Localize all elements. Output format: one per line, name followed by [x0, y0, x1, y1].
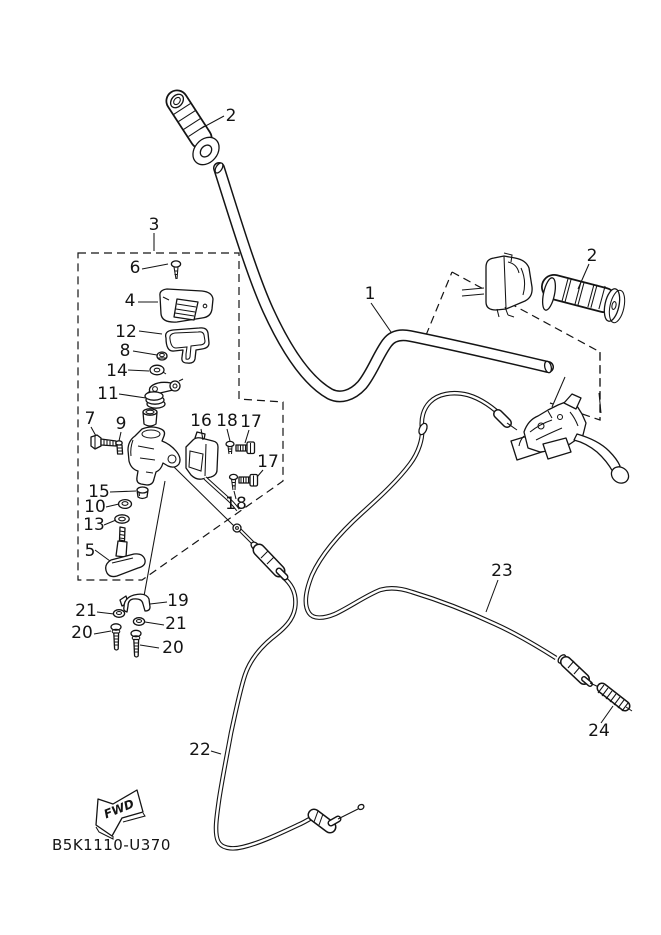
washer-upper: [119, 500, 132, 509]
callout-clamp-screw-left: 20: [71, 623, 93, 643]
callout-screw-upper: 18: [216, 411, 238, 431]
screw-lower: [230, 474, 238, 490]
pivot-cap: [137, 487, 148, 499]
washer-lower: [115, 515, 129, 523]
brake-lever-assembly: [511, 394, 632, 486]
fwd-direction-arrow: FWD: [96, 790, 145, 839]
callout-screw-lower: 18: [225, 494, 247, 514]
bolt-upper: [236, 442, 255, 454]
coil-spring: [145, 391, 165, 408]
throttle-housing: [462, 253, 532, 317]
callout-spring-washer-left: 21: [75, 601, 97, 621]
callout-clamp-screw-right: 20: [162, 638, 184, 658]
callout-tab-washer: 14: [106, 361, 128, 381]
callout-cover-screw: 6: [130, 258, 141, 278]
callout-cable-clamp: 19: [167, 591, 189, 611]
callout-lever-knob: 5: [85, 541, 96, 561]
screw-upper: [226, 441, 234, 454]
lever-knob: [106, 527, 145, 577]
pin-screw: [116, 441, 123, 454]
callout-washer-lower: 13: [83, 515, 105, 535]
clamp-bolt: [91, 435, 116, 449]
cable-end-spring: [598, 685, 632, 711]
lever-bracket: [128, 427, 180, 485]
parts-diagram-page: FWD B5K1110-U370 2 3 6 4 12 8 14 11 7 9 …: [0, 0, 661, 935]
callout-washer-upper: 10: [84, 497, 106, 517]
cable-front: [216, 577, 365, 848]
spring-washer-right: [133, 618, 144, 626]
callout-nut: 8: [120, 341, 131, 361]
callout-coil-spring: 11: [97, 384, 119, 404]
callout-gasket: 12: [115, 322, 137, 342]
grip-left: [168, 92, 224, 170]
nut: [157, 352, 167, 360]
callout-pin-screw: 9: [116, 414, 127, 434]
cable-front-adjuster: [233, 524, 285, 577]
housing-top-cover: [160, 289, 213, 322]
bolt-lower: [239, 475, 258, 487]
callout-cable-rear: 23: [491, 561, 513, 581]
tab-washer: [150, 365, 166, 375]
callout-bolt-lower: 17: [257, 452, 279, 472]
callout-clamp-bolt: 7: [85, 409, 96, 429]
gasket: [166, 328, 209, 363]
callout-cable-front: 22: [189, 740, 211, 760]
callout-spring-washer-right: 21: [165, 614, 187, 634]
grip-right: [540, 277, 627, 324]
clamp-screw-left: [111, 624, 121, 650]
clamp-screw-right: [131, 630, 141, 657]
callout-detail-box: 3: [149, 215, 160, 235]
cable-clamp: [120, 594, 150, 612]
callout-housing-top: 4: [125, 291, 136, 311]
callout-grip-left: 2: [226, 106, 237, 126]
callout-cable-end-spring: 24: [588, 721, 610, 741]
callout-housing-lower: 16: [190, 411, 212, 431]
spring-washer-left: [113, 610, 124, 618]
callout-handlebar: 1: [365, 284, 376, 304]
collar-bushing: [143, 409, 157, 426]
callout-grip-right: 2: [587, 246, 598, 266]
drawing-code: B5K1110-U370: [52, 836, 171, 854]
callout-bolt-upper: 17: [240, 412, 262, 432]
cover-screw: [171, 261, 180, 279]
exploded-diagram-canvas: FWD B5K1110-U370 2 3 6 4 12 8 14 11 7 9 …: [0, 0, 661, 935]
